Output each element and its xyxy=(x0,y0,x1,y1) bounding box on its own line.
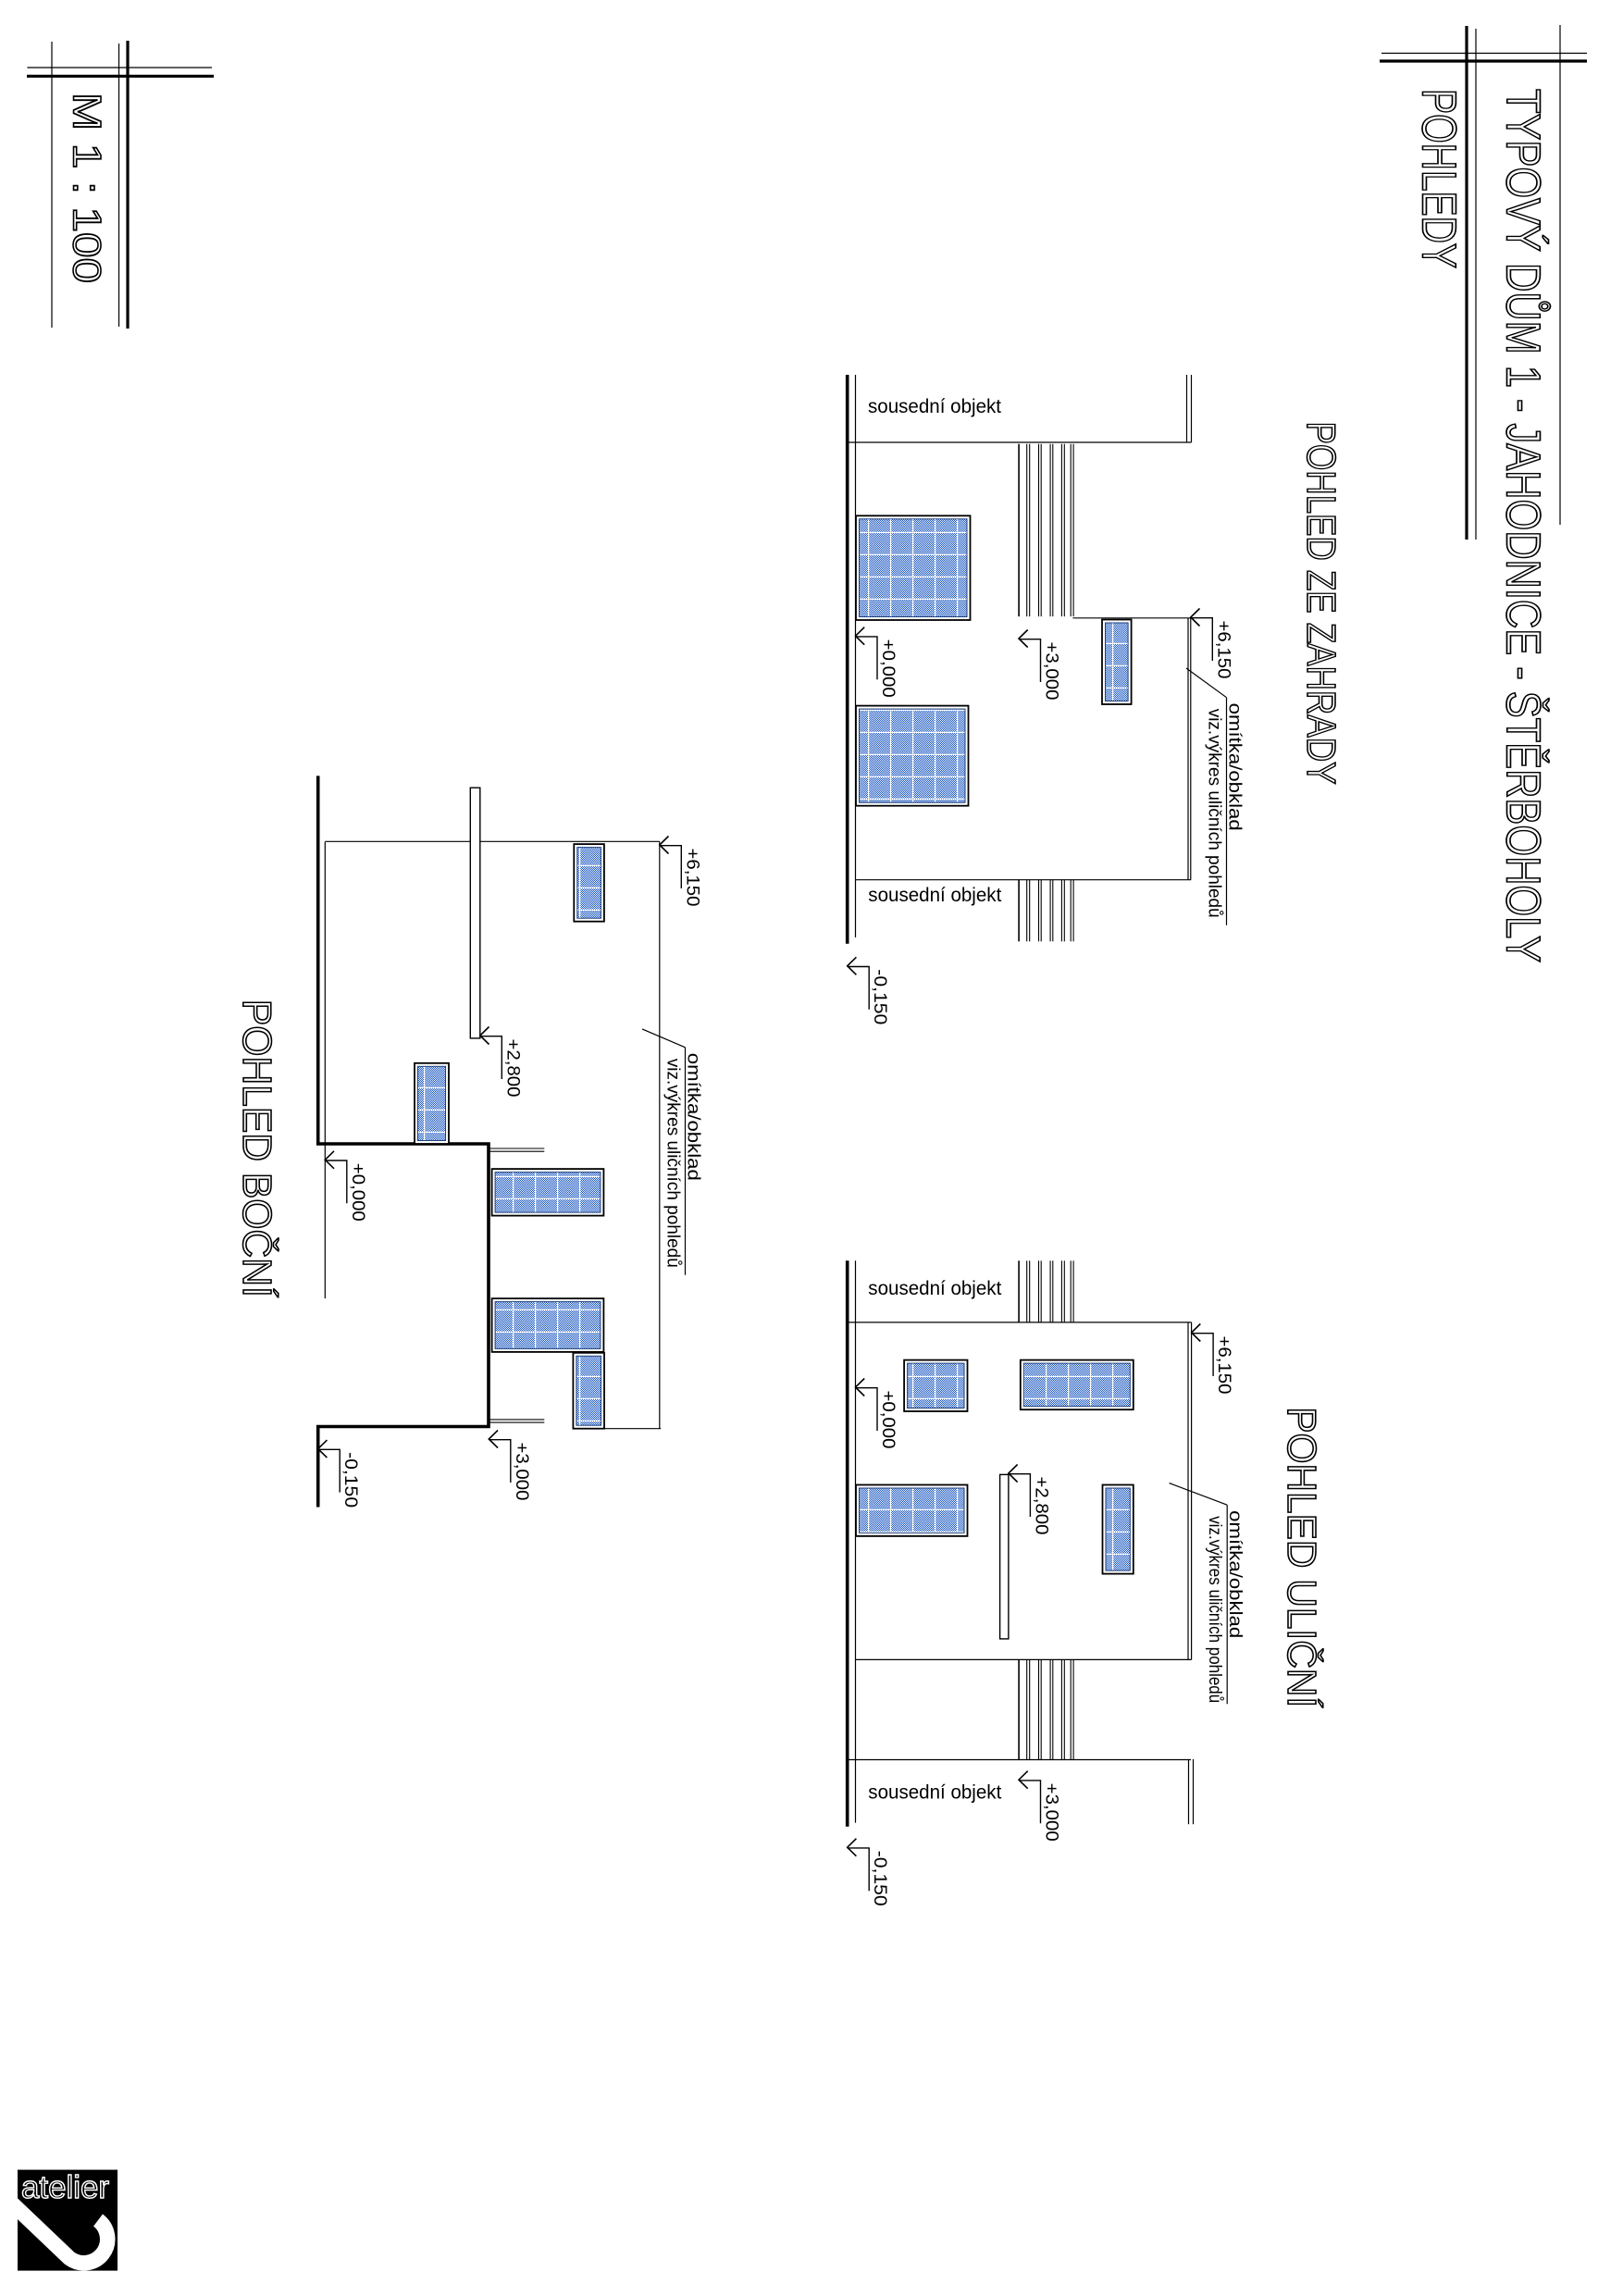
svg-text:atelier: atelier xyxy=(21,2170,109,2205)
svg-text:omítka/obklad: omítka/obklad xyxy=(1225,1510,1245,1638)
svg-text:+0,000: +0,000 xyxy=(878,639,898,698)
svg-text:sousední objekt: sousední objekt xyxy=(868,1782,1001,1804)
svg-text:+3,000: +3,000 xyxy=(1042,642,1061,701)
svg-text:+3,000: +3,000 xyxy=(1042,1783,1061,1842)
svg-text:-0,150: -0,150 xyxy=(870,1851,889,1906)
svg-text:viz.výkres uličních pohledů: viz.výkres uličních pohledů xyxy=(1205,1516,1224,1703)
svg-text:+6,150: +6,150 xyxy=(682,849,701,907)
svg-text:POHLEDY: POHLEDY xyxy=(1411,89,1465,268)
svg-text:+2,800: +2,800 xyxy=(1031,1477,1050,1535)
svg-text:+2,800: +2,800 xyxy=(502,1039,522,1098)
svg-text:viz.výkres uličních pohledů: viz.výkres uličních pohledů xyxy=(1205,709,1224,918)
svg-text:+6,150: +6,150 xyxy=(1214,1336,1233,1395)
svg-text:viz.výkres uličních pohledů: viz.výkres uličních pohledů xyxy=(663,1059,683,1268)
svg-text:omítka/obklad: omítka/obklad xyxy=(684,1053,703,1181)
svg-text:-0,150: -0,150 xyxy=(341,1452,360,1508)
svg-text:sousední objekt: sousední objekt xyxy=(868,396,1001,417)
svg-text:sousední objekt: sousední objekt xyxy=(868,885,1001,906)
svg-text:-0,150: -0,150 xyxy=(870,969,889,1024)
svg-text:+3,000: +3,000 xyxy=(512,1443,531,1501)
svg-text:+0,000: +0,000 xyxy=(348,1163,367,1222)
svg-text:omítka/obklad: omítka/obklad xyxy=(1225,703,1245,831)
svg-text:+0,000: +0,000 xyxy=(878,1391,898,1449)
svg-text:M 1 : 100: M 1 : 100 xyxy=(64,93,108,283)
svg-text:POHLED BOČNÍ: POHLED BOČNÍ xyxy=(234,999,280,1298)
svg-text:POHLED ZE ZAHRADY: POHLED ZE ZAHRADY xyxy=(1298,422,1344,785)
svg-text:+6,150: +6,150 xyxy=(1213,621,1233,679)
svg-text:sousední objekt: sousední objekt xyxy=(868,1278,1001,1299)
svg-text:TYPOVÝ DŮM 1 - JAHODNICE - ŠTĚ: TYPOVÝ DŮM 1 - JAHODNICE - ŠTĚRBOHOLY xyxy=(1496,89,1551,962)
svg-text:POHLED ULIČNÍ: POHLED ULIČNÍ xyxy=(1279,1407,1325,1708)
